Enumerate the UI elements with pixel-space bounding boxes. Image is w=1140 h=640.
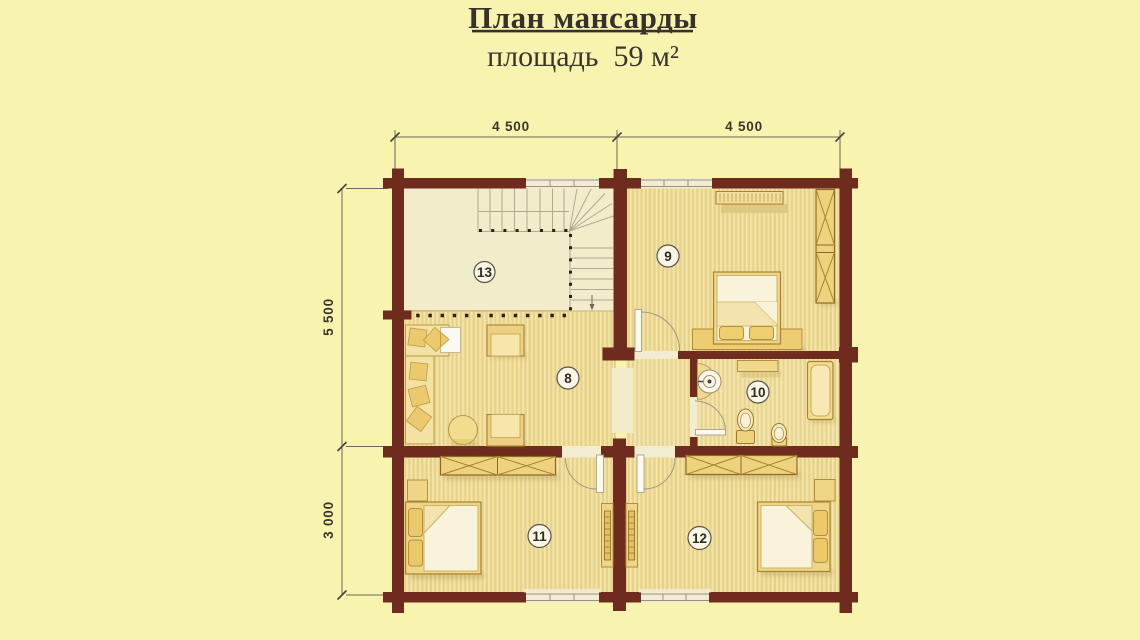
svg-text:8: 8 xyxy=(564,371,572,386)
svg-text:11: 11 xyxy=(532,529,547,544)
svg-text:3 000: 3 000 xyxy=(321,501,336,539)
svg-text:5 500: 5 500 xyxy=(321,298,336,336)
svg-text:площадь 59 м²: площадь 59 м² xyxy=(487,40,679,73)
svg-text:12: 12 xyxy=(692,531,707,546)
svg-text:9: 9 xyxy=(664,249,672,264)
svg-text:10: 10 xyxy=(750,385,765,400)
svg-text:План мансарды: План мансарды xyxy=(468,0,698,35)
svg-text:4 500: 4 500 xyxy=(725,119,763,134)
svg-text:13: 13 xyxy=(477,265,493,280)
svg-text:4 500: 4 500 xyxy=(492,119,530,134)
